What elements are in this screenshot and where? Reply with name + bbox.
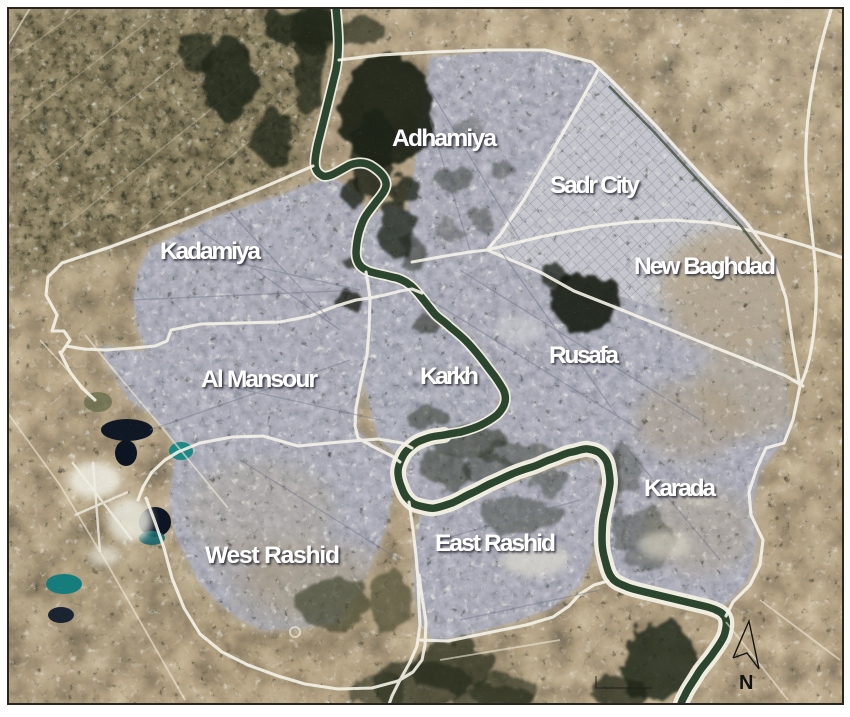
svg-text:East Rashid: East Rashid (435, 530, 556, 557)
svg-text:New Baghdad: New Baghdad (634, 253, 776, 280)
svg-text:Rusafa: Rusafa (549, 342, 619, 369)
svg-text:Karada: Karada (644, 475, 716, 502)
svg-text:West Rashid: West Rashid (205, 542, 340, 569)
svg-text:N: N (739, 672, 753, 694)
svg-text:Kadamiya: Kadamiya (160, 238, 261, 265)
svg-text:Sadr City: Sadr City (550, 172, 640, 199)
svg-text:Adhamiya: Adhamiya (392, 125, 497, 152)
svg-text:Al Mansour: Al Mansour (201, 366, 318, 393)
svg-text:Karkh: Karkh (420, 363, 479, 390)
